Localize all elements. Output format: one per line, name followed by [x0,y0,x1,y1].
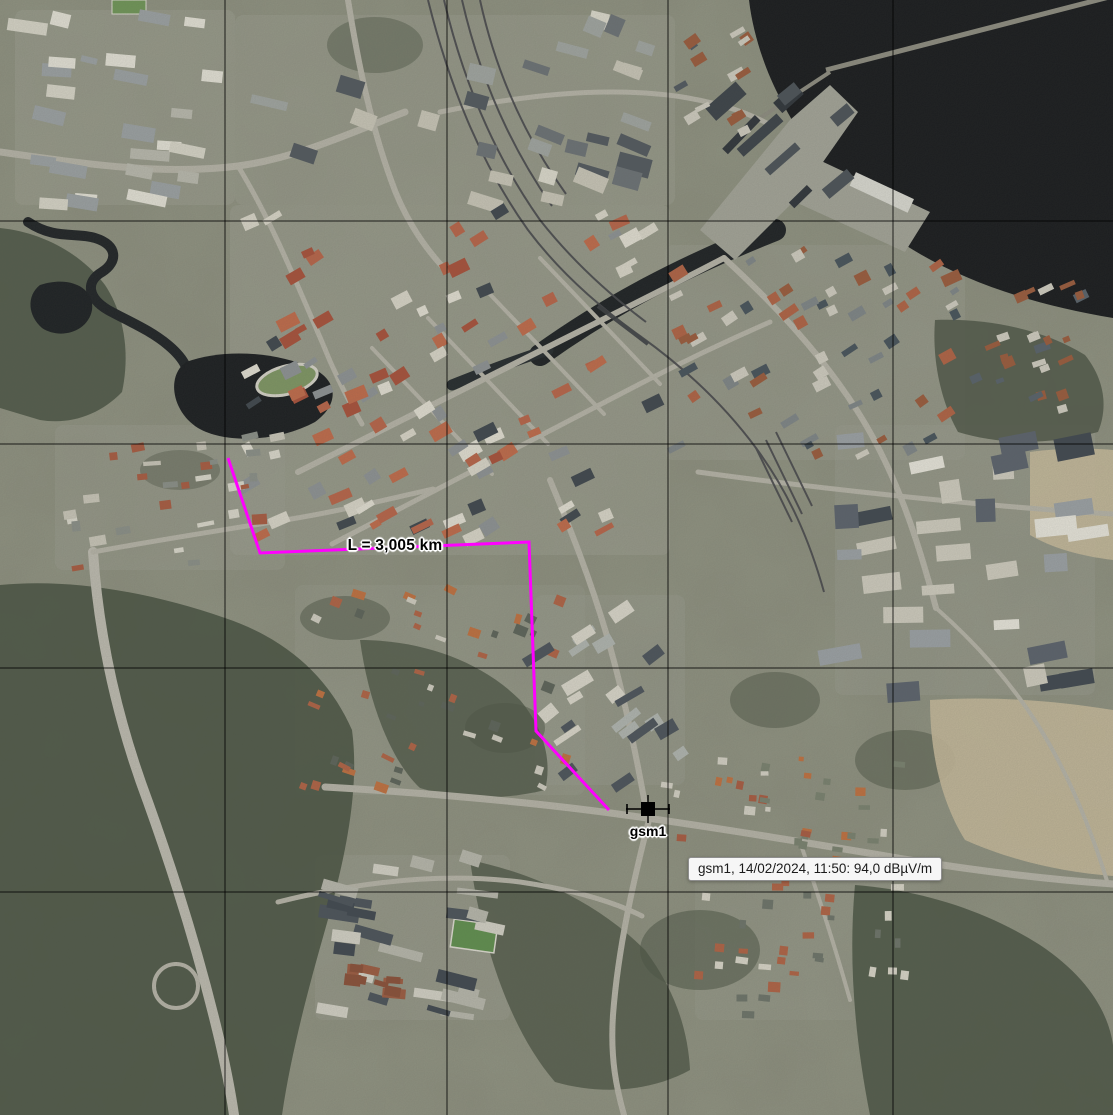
map-canvas[interactable]: L = 3,005 km gsm1 gsm1, 14/02/2024, 11:5… [0,0,1113,1115]
measurement-tooltip: gsm1, 14/02/2024, 11:50: 94,0 dBµV/m [688,857,942,881]
transmitter-icon [626,793,670,825]
tooltip-text: gsm1, 14/02/2024, 11:50: 94,0 dBµV/m [698,861,932,876]
measurement-path[interactable] [228,458,609,810]
map-grid [0,0,1113,1115]
site-marker-gsm1[interactable] [626,793,670,825]
